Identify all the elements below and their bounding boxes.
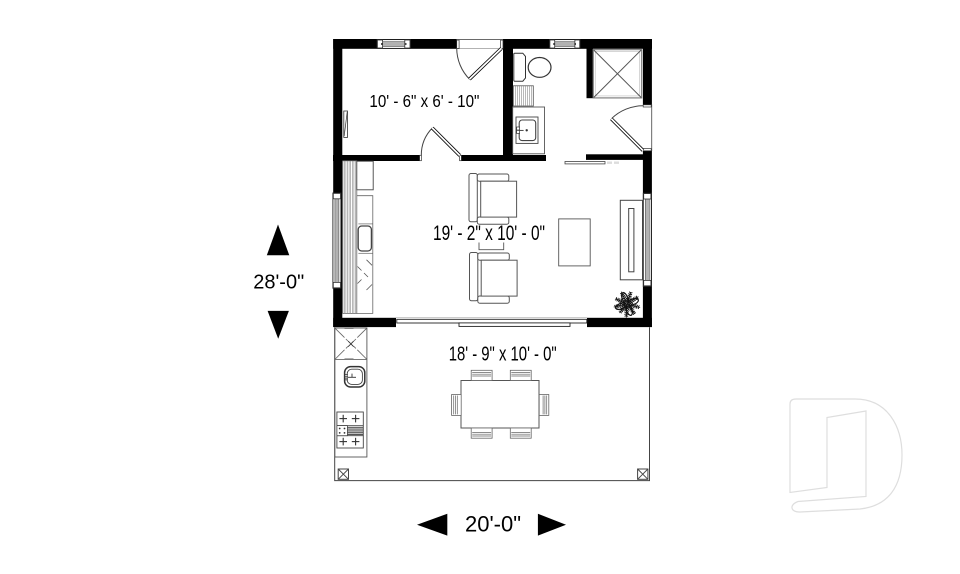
svg-text:10' - 6" x 6' - 10": 10' - 6" x 6' - 10" <box>369 91 479 111</box>
svg-text:20'-0": 20'-0" <box>465 512 521 537</box>
svg-text:18' - 9" x 10' - 0": 18' - 9" x 10' - 0" <box>449 343 557 366</box>
svg-text:28'-0": 28'-0" <box>253 271 304 293</box>
